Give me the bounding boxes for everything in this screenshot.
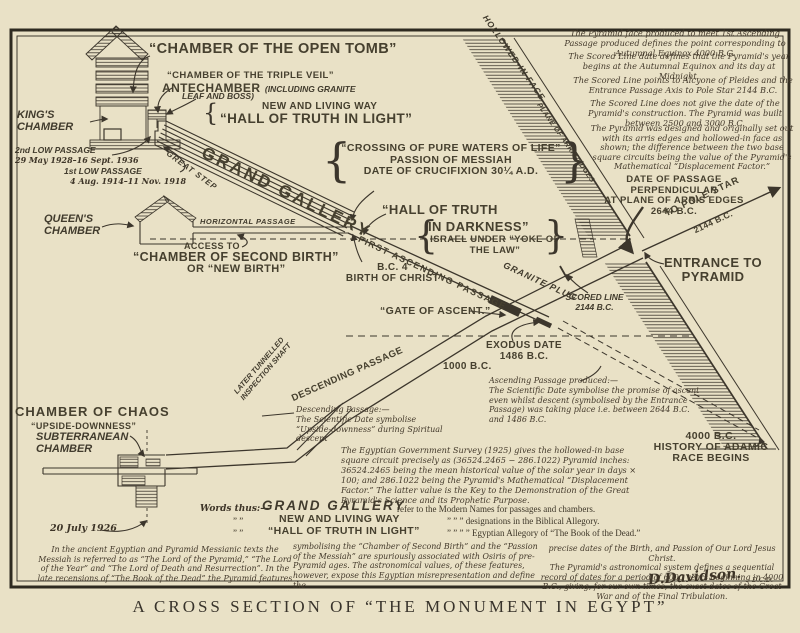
label-chamber-second-birth: “CHAMBER OF SECOND BIRTH” [133, 250, 339, 264]
brace-icon: { [414, 216, 438, 254]
note-ascending-produced: Ascending Passage produced:— The Scienti… [489, 376, 707, 425]
label-2nd-low-passage: 2nd LOW PASSAGE [15, 145, 96, 155]
legend-tail-3: ” ” ” ” Egyptian Allegory of “The Book o… [447, 528, 640, 538]
label-queens-chamber: QUEEN'S CHAMBER [44, 213, 100, 237]
legend-ditto-3: ” ” [233, 528, 243, 538]
brace-icon: { [203, 101, 218, 125]
label-20-july-1926: 20 July 1926 [50, 523, 117, 534]
label-crossing-waters: “CROSSING OF PURE WATERS OF LIFE” PASSIO… [336, 143, 566, 178]
label-israel-yoke: ISRAEL UNDER “YOKE OF THE LAW” [430, 235, 560, 256]
note-egyptian-survey: The Egyptian Government Survey (1925) gi… [341, 445, 655, 505]
label-chamber-of-chaos: CHAMBER OF CHAOS [15, 404, 170, 419]
note-displacement-factor: The Pyramid was designed and originally … [588, 124, 796, 172]
label-scored-line: SCORED LINE 2144 B.C. [552, 293, 637, 312]
legend-tail-1: refer to the Modern Names for passages a… [397, 504, 595, 514]
note-scored-line-alcyone: The Scored Line points to Alcyone of Ple… [570, 76, 796, 96]
legend-intro: Words thus:— [200, 504, 269, 514]
antechamber-paren-text: (INCLUDING GRANITE [265, 84, 356, 94]
legend-ditto-2: ” ” [233, 516, 243, 526]
label-hall-darkness-2: IN DARKNESS” [428, 219, 529, 234]
label-2nd-low-passage-dates: 29 May 1928–16 Sept. 1936 [15, 155, 139, 165]
brace-icon: { [322, 137, 351, 183]
pyramid-cross-section-diagram: “CHAMBER OF THE OPEN TOMB” “CHAMBER OF T… [0, 0, 800, 633]
label-1st-low-passage-dates: 4 Aug. 1914–11 Nov. 1918 [70, 176, 186, 186]
legend-term-new-living-way: NEW AND LIVING WAY [279, 513, 400, 525]
label-1st-low-passage: 1st LOW PASSAGE [64, 166, 142, 176]
page-title: A CROSS SECTION OF “THE MONUMENT IN EGYP… [0, 597, 800, 617]
brace-icon: } [544, 216, 568, 254]
legend-term-hall-truth-light: “HALL OF TRUTH IN LIGHT” [268, 525, 420, 537]
legend-term-grand-gallery: GRAND GALLERY [262, 498, 406, 513]
label-hall-darkness-1: “HALL OF TRUTH [382, 202, 498, 217]
label-birth-of-christ: B.C. 4 BIRTH OF CHRIST [345, 262, 440, 284]
label-horizontal-passage: HORIZONTAL PASSAGE [200, 217, 296, 226]
note-messianic-texts: In the ancient Egyptian and Pyramid Mess… [36, 545, 294, 584]
label-hall-truth-light: “HALL OF TRUTH IN LIGHT” [220, 111, 412, 126]
label-adamic-race: 4000 B.C. HISTORY OF ADAMIC RACE BEGINS [652, 431, 770, 464]
label-gate-of-ascent: “GATE OF ASCENT.” [380, 305, 491, 317]
label-1000-bc: 1000 B.C. [443, 361, 492, 372]
legend-tail-2: ” ” ” designations in the Biblical Alleg… [447, 516, 599, 526]
label-exodus-date: EXODUS DATE 1486 B.C. [484, 340, 564, 362]
label-entrance-to-pyramid: ENTRANCE TO PYRAMID [658, 256, 768, 284]
label-new-birth: OR “NEW BIRTH” [187, 263, 285, 275]
label-upside-downness: “UPSIDE-DOWNNESS” [31, 421, 136, 431]
label-chamber-open-tomb: “CHAMBER OF THE OPEN TOMB” [149, 41, 397, 57]
label-subterranean-chamber: SUBTERRANEAN CHAMBER [36, 431, 128, 455]
note-osiris: symbolising the “Chamber of Second Birth… [293, 542, 541, 591]
note-descending-passage: Descending Passage:— The Scientific Date… [296, 405, 471, 444]
signature-initials: D.C.D. [752, 577, 773, 585]
label-kings-chamber: KING'S CHAMBER [17, 109, 73, 133]
